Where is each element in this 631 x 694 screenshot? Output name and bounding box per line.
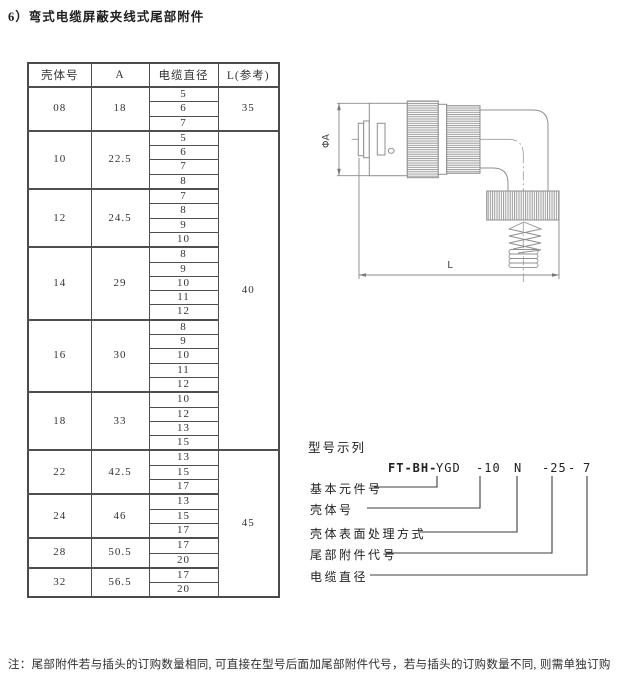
column-header-3: L(参考) (218, 63, 279, 87)
elbow-tube (480, 110, 548, 191)
cell-l-ref: 40 (218, 131, 279, 451)
cell-diameter: 11 (149, 363, 218, 377)
datasheet-page: 6）弯式电缆屏蔽夹线式尾部附件 壳体号A电缆直径L(参考) 0818535671… (0, 0, 631, 694)
dimension-table: 壳体号A电缆直径L(参考) 0818535671022.55406781224.… (27, 62, 280, 598)
cell-diameter: 17 (149, 523, 218, 538)
cell-diameter: 13 (149, 494, 218, 509)
cell-diameter: 8 (149, 320, 218, 335)
cell-diameter: 15 (149, 509, 218, 523)
clamp-body-knurl (447, 106, 480, 174)
cell-diameter: 17 (149, 480, 218, 495)
model-code-segment-0: FT-BH- (388, 461, 437, 475)
table-row: 0818535 (28, 87, 279, 102)
cell-diameter: 9 (149, 262, 218, 276)
cell-shell: 24 (28, 494, 91, 538)
cell-diameter: 17 (149, 538, 218, 553)
cell-shell: 18 (28, 392, 91, 450)
cell-a: 46 (91, 494, 149, 538)
cell-diameter: 10 (149, 232, 218, 247)
model-code-segment-2: -10 (476, 461, 501, 475)
cell-diameter: 12 (149, 305, 218, 320)
cell-diameter: 8 (149, 247, 218, 262)
model-label-1: 壳体号 (310, 501, 354, 518)
cell-diameter: 7 (149, 160, 218, 174)
cell-a: 56.5 (91, 568, 149, 598)
model-code-segment-3: N (514, 461, 522, 475)
model-designation: 型号示列 FT-BH-YGD-10N-25-7 基本元件号壳体号壳体表面处理方式… (300, 437, 630, 589)
table-row: 1022.5540 (28, 131, 279, 146)
cell-a: 30 (91, 320, 149, 392)
cell-diameter: 7 (149, 116, 218, 131)
cell-diameter: 8 (149, 204, 218, 218)
coupling-nut-knurl (407, 101, 480, 178)
cell-diameter: 6 (149, 146, 218, 160)
cell-diameter: 6 (149, 102, 218, 116)
dim-l-label: L (447, 260, 453, 271)
cell-diameter: 10 (149, 349, 218, 363)
cell-diameter: 17 (149, 568, 218, 583)
cell-diameter: 10 (149, 276, 218, 290)
cable-clamp-nut (487, 191, 559, 220)
cell-diameter: 13 (149, 450, 218, 465)
connector-body (358, 103, 407, 175)
cell-diameter: 20 (149, 553, 218, 568)
cell-a: 24.5 (91, 189, 149, 247)
cell-diameter: 13 (149, 421, 218, 435)
cell-shell: 10 (28, 131, 91, 189)
cell-a: 18 (91, 87, 149, 131)
cell-diameter: 9 (149, 335, 218, 349)
cell-a: 42.5 (91, 450, 149, 494)
table-header: 壳体号A电缆直径L(参考) (28, 63, 279, 87)
cell-a: 33 (91, 392, 149, 450)
cell-diameter: 9 (149, 218, 218, 232)
model-code-segment-6: 7 (583, 461, 591, 475)
model-code-segment-4: -25 (542, 461, 567, 475)
cell-diameter: 5 (149, 87, 218, 102)
column-header-0: 壳体号 (28, 63, 91, 87)
cell-shell: 16 (28, 320, 91, 392)
cell-shell: 08 (28, 87, 91, 131)
page-title: 6）弯式电缆屏蔽夹线式尾部附件 (8, 6, 204, 25)
strain-relief-spring (509, 222, 541, 253)
cell-shell: 22 (28, 450, 91, 494)
rivet-hole (388, 148, 394, 153)
cell-diameter: 10 (149, 392, 218, 407)
model-code-segment-5: - (568, 461, 576, 475)
model-label-2: 壳体表面处理方式 (310, 525, 426, 542)
cell-shell: 32 (28, 568, 91, 598)
cell-diameter: 12 (149, 407, 218, 421)
model-label-0: 基本元件号 (310, 480, 383, 497)
footnote: 注：尾部附件若与插头的订购数量相同, 可直接在型号后面加尾部附件代号，若与插头的… (8, 656, 626, 672)
cell-diameter: 11 (149, 291, 218, 305)
model-code-segment-1: YGD (436, 461, 461, 475)
cell-a: 50.5 (91, 538, 149, 568)
cell-diameter: 5 (149, 131, 218, 146)
model-label-4: 电缆直径 (310, 568, 368, 585)
cell-diameter: 15 (149, 465, 218, 479)
cell-diameter: 20 (149, 583, 218, 598)
cell-shell: 14 (28, 247, 91, 319)
cell-diameter: 15 (149, 436, 218, 451)
dim-phi-a-label: ΦA (321, 134, 332, 148)
cell-diameter: 7 (149, 189, 218, 204)
cell-shell: 12 (28, 189, 91, 247)
column-header-1: A (91, 63, 149, 87)
cell-l-ref: 35 (218, 87, 279, 131)
cell-shell: 28 (28, 538, 91, 568)
cell-diameter: 8 (149, 174, 218, 189)
model-label-3: 尾部附件代号 (310, 546, 397, 563)
cell-diameter: 12 (149, 377, 218, 392)
elbow-connector-drawing: ΦA L (320, 85, 600, 290)
cell-a: 29 (91, 247, 149, 319)
column-header-2: 电缆直径 (149, 63, 218, 87)
bayonet-slot (377, 123, 385, 155)
cell-l-ref: 45 (218, 450, 279, 597)
cell-a: 22.5 (91, 131, 149, 189)
table-row: 2242.51345 (28, 450, 279, 465)
